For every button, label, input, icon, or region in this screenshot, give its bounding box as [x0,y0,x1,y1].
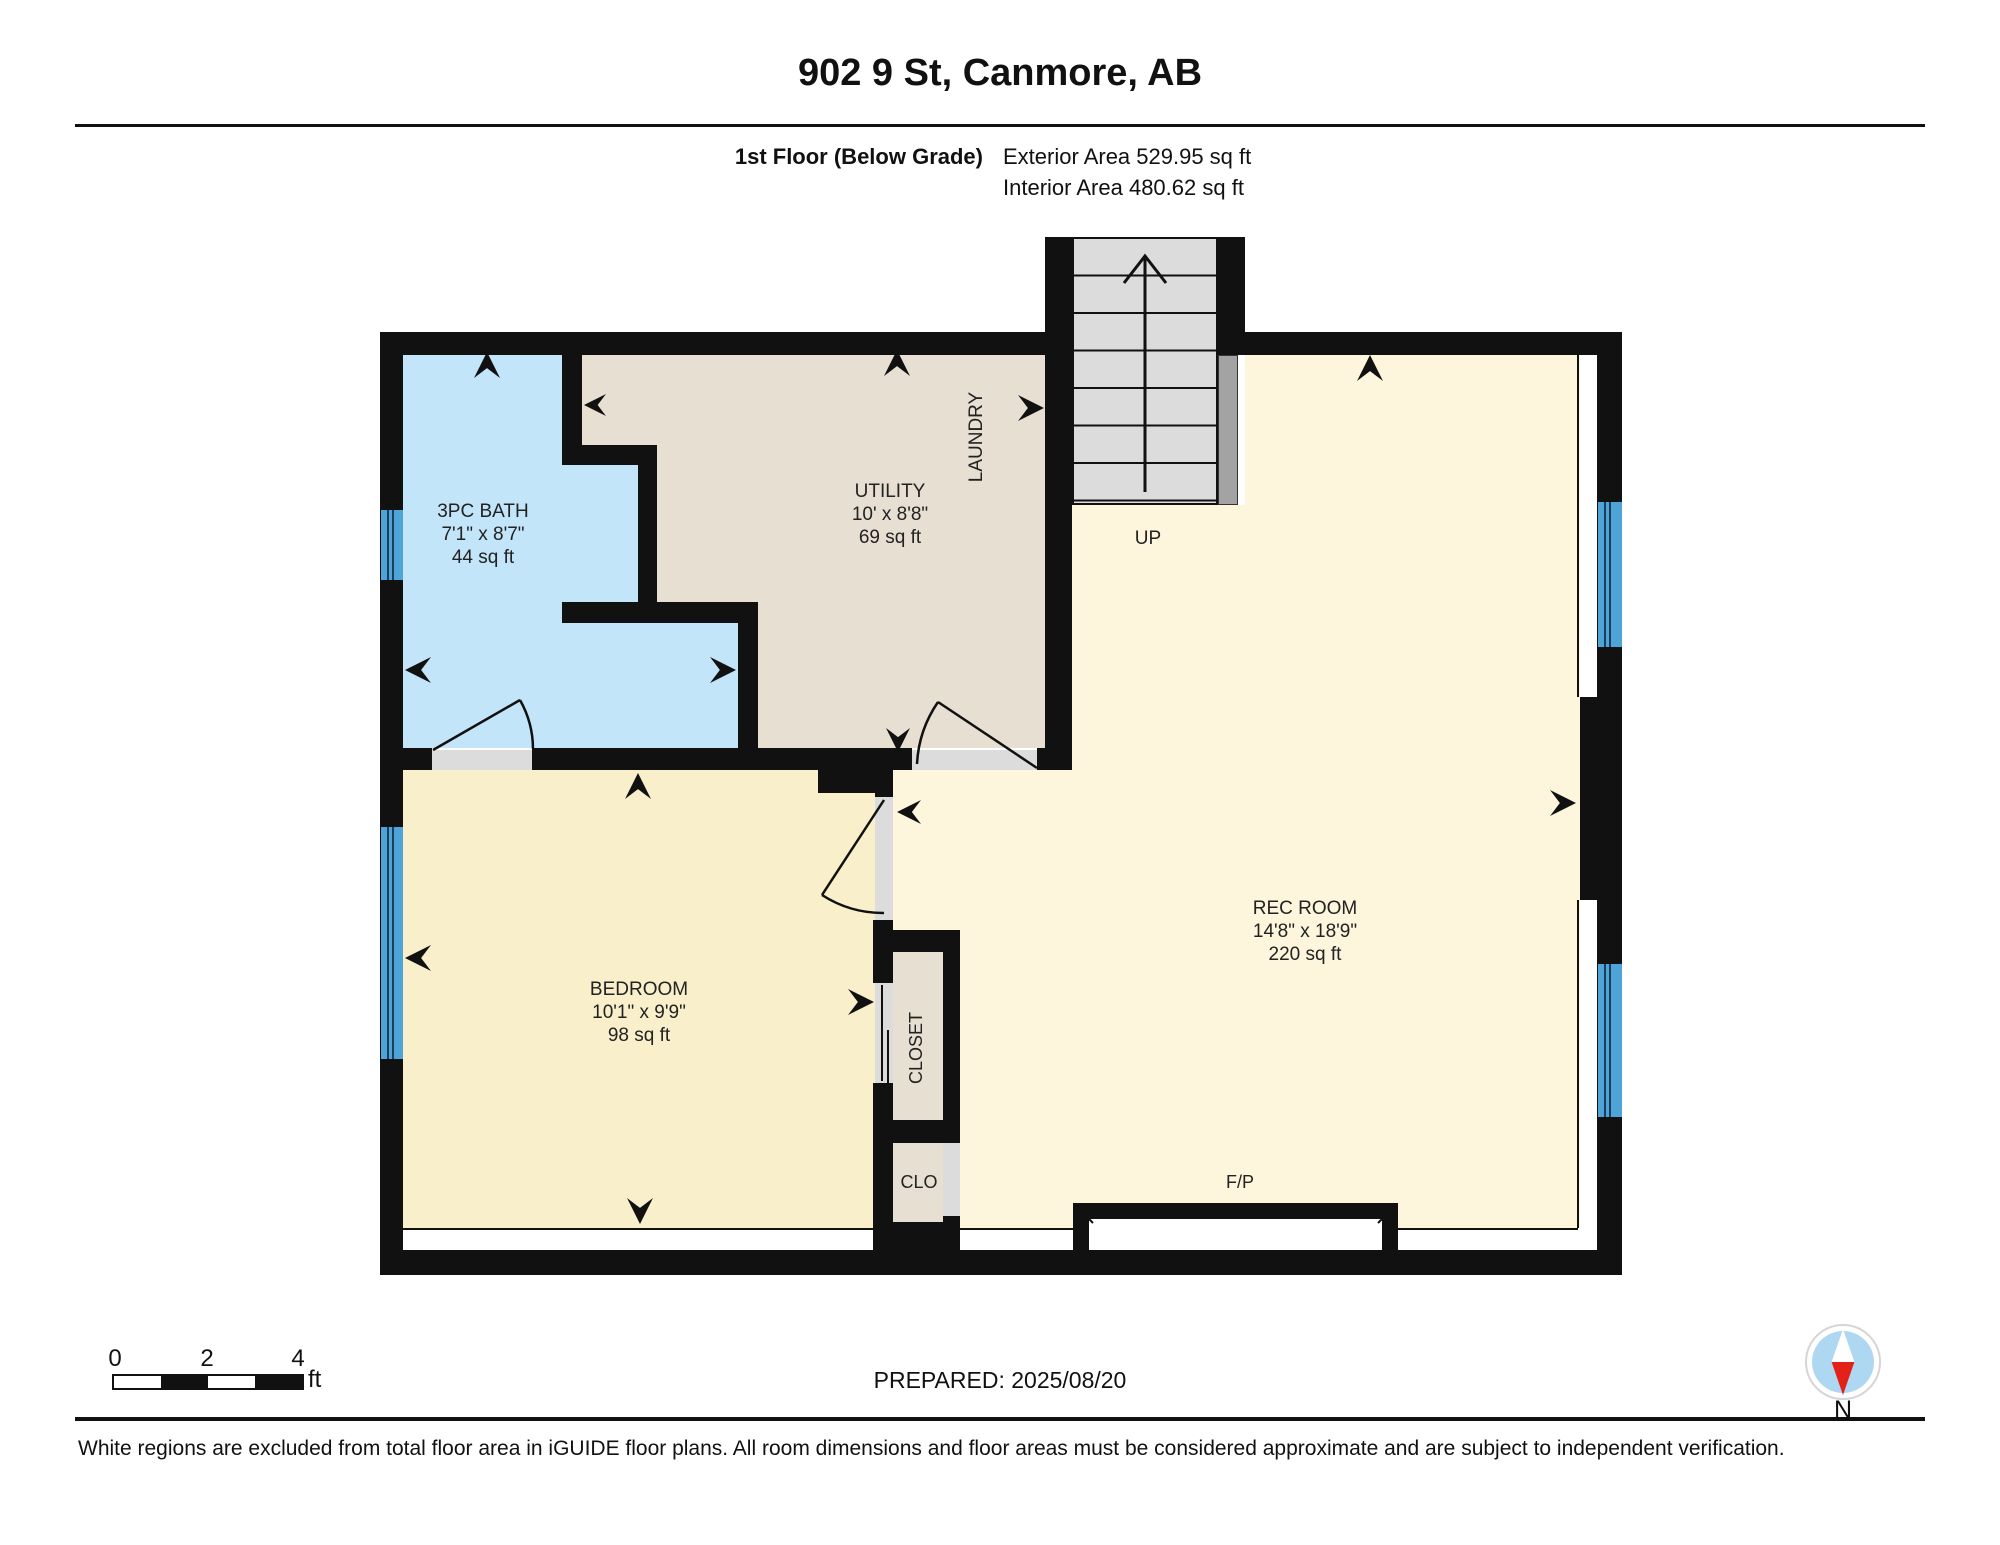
bath-dims: 7'1" x 8'7" [383,523,583,546]
utility-name: UTILITY [790,480,990,503]
bedroom-area: 98 sq ft [539,1024,739,1047]
disclaimer-text: White regions are excluded from total fl… [78,1437,1785,1461]
bath-label: 3PC BATH7'1" x 8'7"44 sq ft [383,500,583,569]
prepared-date: PREPARED: 2025/08/20 [0,1367,2000,1394]
utility-area: 69 sq ft [790,526,990,549]
rec-dims: 14'8" x 18'9" [1205,920,1405,943]
bath-door-panel [433,700,520,750]
bedroom-door-swing [822,895,884,913]
bedroom-door-panel [822,800,884,895]
bedroom-name: BEDROOM [539,978,739,1001]
clo-label: CLO [889,1172,949,1193]
utility-label: UTILITY10' x 8'8"69 sq ft [790,480,990,549]
stairs-up-label: UP [1118,528,1178,550]
utility-door-swing [917,702,938,764]
footer-divider [75,1417,1925,1421]
bedroom-dims: 10'1" x 9'9" [539,1001,739,1024]
bath-area: 44 sq ft [383,546,583,569]
closet-label: CLOSET [905,978,931,1118]
utility-dims: 10' x 8'8" [790,503,990,526]
laundry-label: LAUNDRY [965,367,991,507]
rec-area: 220 sq ft [1205,943,1405,966]
plan-line-overlay [0,0,2000,1545]
fireplace-corner-line [1076,1206,1093,1223]
fireplace-corner-line [1378,1206,1395,1223]
utility-door-panel [938,702,1037,768]
compass-icon [1805,1324,1881,1400]
fireplace-label: F/P [1210,1172,1270,1193]
rec-name: REC ROOM [1205,897,1405,920]
bath-door-swing [520,700,533,749]
bath-name: 3PC BATH [383,500,583,523]
floorplan-page: 902 9 St, Canmore, AB 1st Floor (Below G… [0,0,2000,1545]
bedroom-label: BEDROOM10'1" x 9'9"98 sq ft [539,978,739,1047]
rec-room-label: REC ROOM14'8" x 18'9"220 sq ft [1205,897,1405,966]
